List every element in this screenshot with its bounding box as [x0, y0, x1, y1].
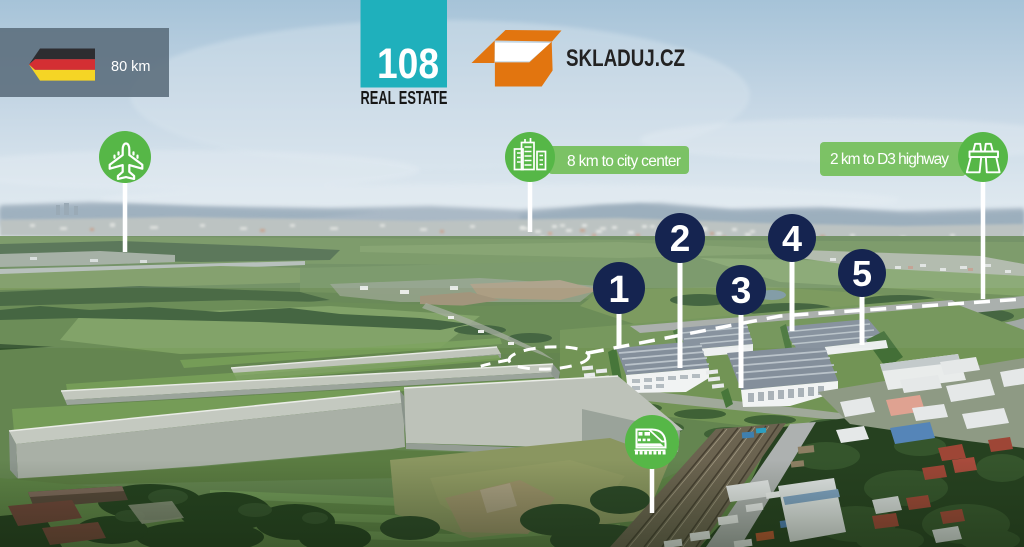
svg-text:1: 1 [608, 269, 629, 311]
svg-text:80 km: 80 km [111, 59, 151, 75]
svg-text:4: 4 [782, 218, 802, 259]
svg-text:2: 2 [670, 218, 691, 259]
svg-text:5: 5 [852, 253, 872, 294]
svg-text:3: 3 [731, 270, 752, 311]
svg-text:2 km to D3 highway: 2 km to D3 highway [830, 151, 949, 168]
svg-text:108: 108 [377, 40, 439, 88]
svg-text:REAL ESTATE: REAL ESTATE [361, 88, 448, 108]
svg-text:8 km to city center: 8 km to city center [567, 153, 681, 170]
svg-text:SKLADUJ.CZ: SKLADUJ.CZ [566, 45, 685, 72]
